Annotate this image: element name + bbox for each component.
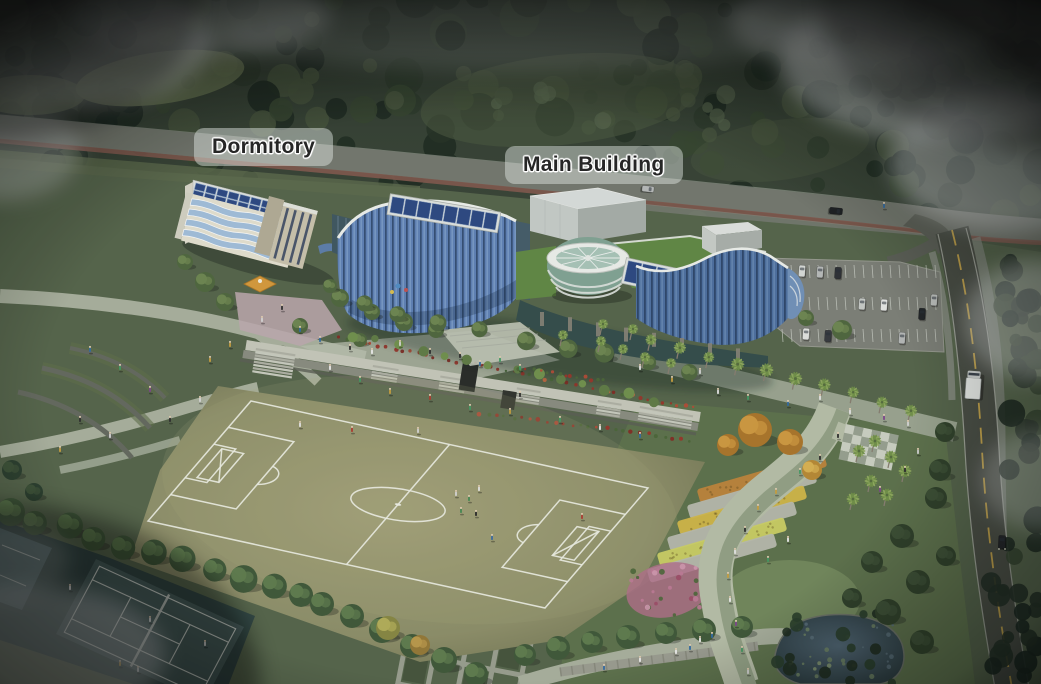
main-building-label-text: Main Building — [523, 153, 665, 176]
dormitory-label-text: Dormitory — [212, 135, 315, 158]
vignette — [0, 0, 1041, 684]
main-building-label: Main Building — [505, 146, 683, 184]
campus-aerial-view: Dormitory Main Building — [0, 0, 1041, 684]
dormitory-label: Dormitory — [194, 128, 333, 166]
scene-canvas — [0, 0, 1041, 684]
